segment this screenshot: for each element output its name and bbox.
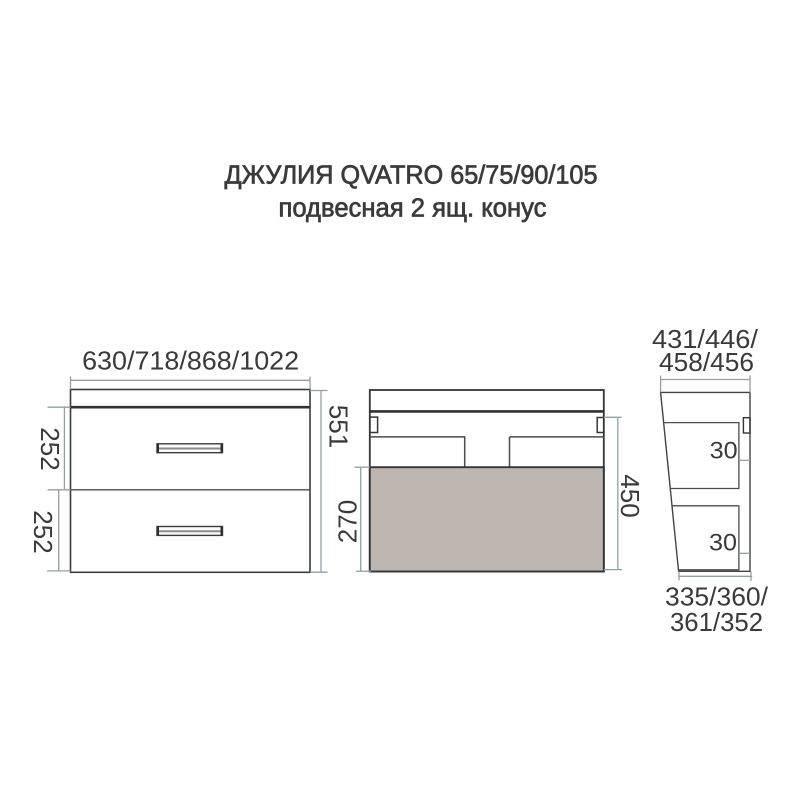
svg-text:30: 30 bbox=[709, 529, 737, 556]
svg-text:252: 252 bbox=[28, 510, 58, 553]
svg-text:252: 252 bbox=[35, 427, 65, 470]
svg-text:551: 551 bbox=[324, 405, 354, 448]
svg-text:450: 450 bbox=[615, 474, 645, 517]
svg-text:361/352: 361/352 bbox=[670, 607, 763, 637]
svg-text:30: 30 bbox=[710, 437, 738, 464]
svg-text:270: 270 bbox=[333, 500, 363, 543]
svg-text:458/456: 458/456 bbox=[659, 347, 754, 377]
svg-text:ДЖУЛИЯ QVATRO 65/75/90/105: ДЖУЛИЯ QVATRO 65/75/90/105 bbox=[225, 161, 598, 189]
svg-text:630/718/868/1022: 630/718/868/1022 bbox=[82, 345, 299, 375]
svg-text:подвесная 2 ящ. конус: подвесная 2 ящ. конус bbox=[279, 195, 547, 223]
